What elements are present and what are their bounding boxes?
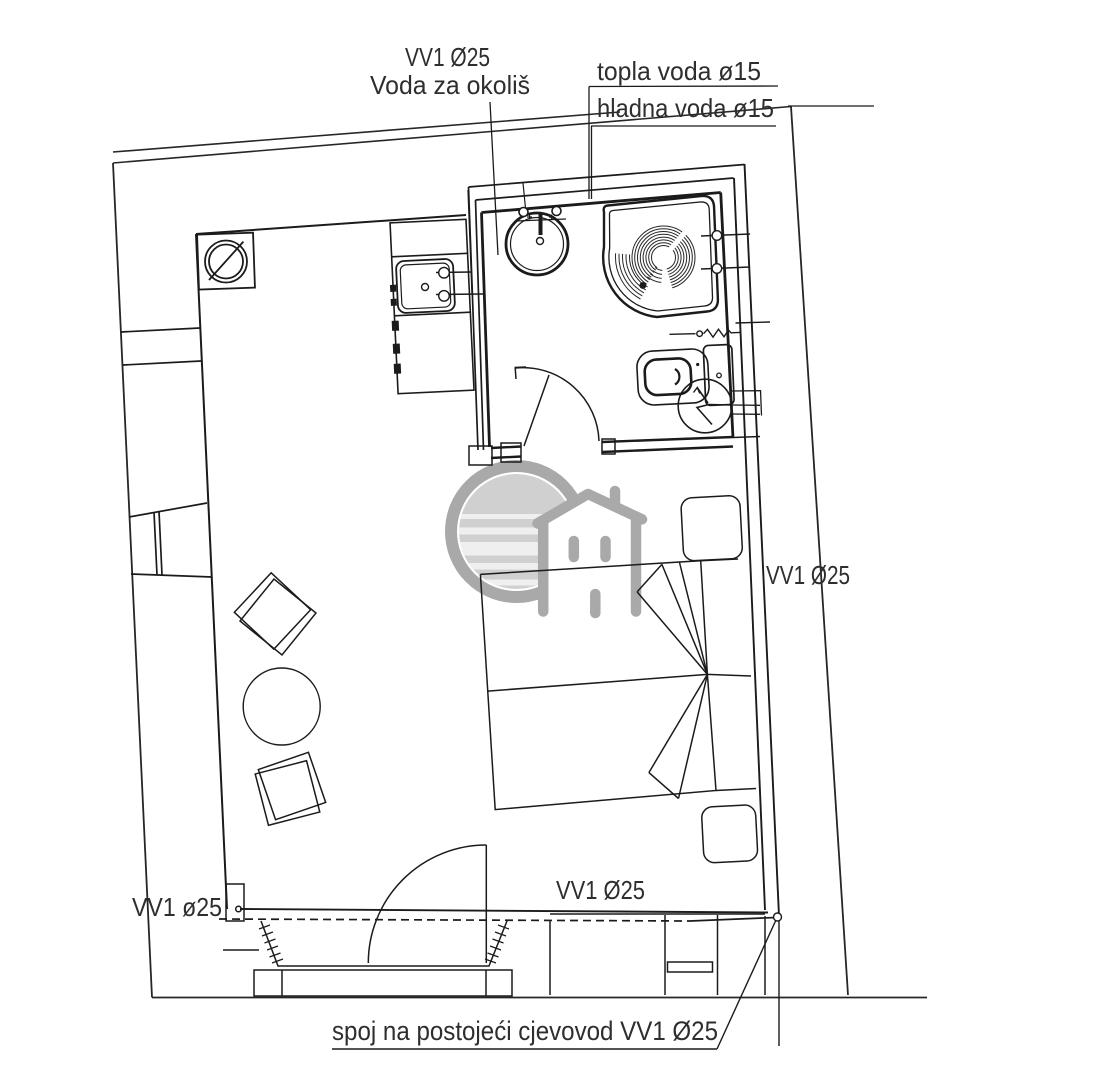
svg-text:topla voda ø15: topla voda ø15: [597, 56, 761, 86]
svg-text:VV1 Ø25: VV1 Ø25: [405, 42, 490, 72]
svg-text:VV1 ø25: VV1 ø25: [132, 892, 222, 922]
svg-text:hladna voda ø15: hladna voda ø15: [597, 93, 774, 123]
svg-text:Voda za okoliš: Voda za okoliš: [370, 70, 530, 100]
svg-text:VV1 Ø25: VV1 Ø25: [556, 875, 645, 905]
svg-text:VV1 Ø25: VV1 Ø25: [766, 560, 850, 590]
svg-text:spoj na postojeći cjevovod VV1: spoj na postojeći cjevovod VV1 Ø25: [332, 1016, 718, 1046]
